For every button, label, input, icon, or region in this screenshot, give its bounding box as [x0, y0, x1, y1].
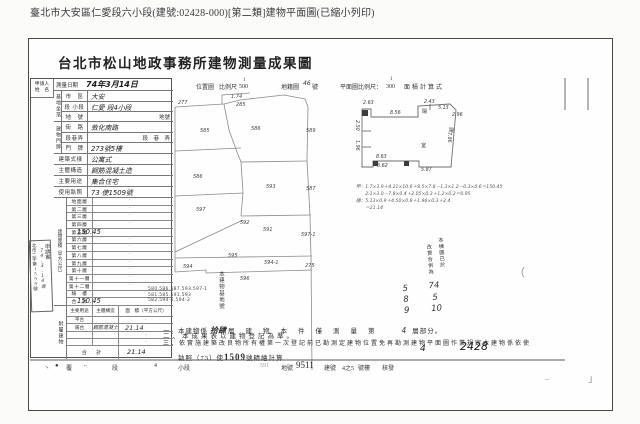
footer-token: 地號 [281, 363, 293, 372]
footer-token: 小段 [178, 363, 190, 372]
footer-token: 號樓 [358, 363, 370, 372]
footer-dash-mark: – [545, 374, 549, 383]
footer-token: 591 [260, 363, 269, 369]
footer-token: 段 [112, 363, 118, 372]
footer-token: 核發 [382, 363, 394, 372]
footer-token: ⌐ [84, 363, 87, 369]
footer-token: 9511 [296, 360, 314, 370]
footer-strip: 丶●覆⌐段4小段591地號9511建號4之5號樓核發 [0, 0, 640, 424]
footer-token: 覆 [66, 363, 72, 372]
footer-token: 4之5 [342, 363, 354, 372]
footer-token: 丶 [44, 363, 50, 372]
scanned-survey-document: 臺北市大安區仁愛段六小段(建號:02428-000)[第二類]建物平面圖(已縮小… [0, 0, 640, 424]
footer-bracket-mark: 」 [588, 370, 598, 385]
footer-token: 4 [154, 363, 157, 369]
footer-token: ● [55, 363, 59, 369]
footer-token: 建號 [324, 363, 336, 372]
